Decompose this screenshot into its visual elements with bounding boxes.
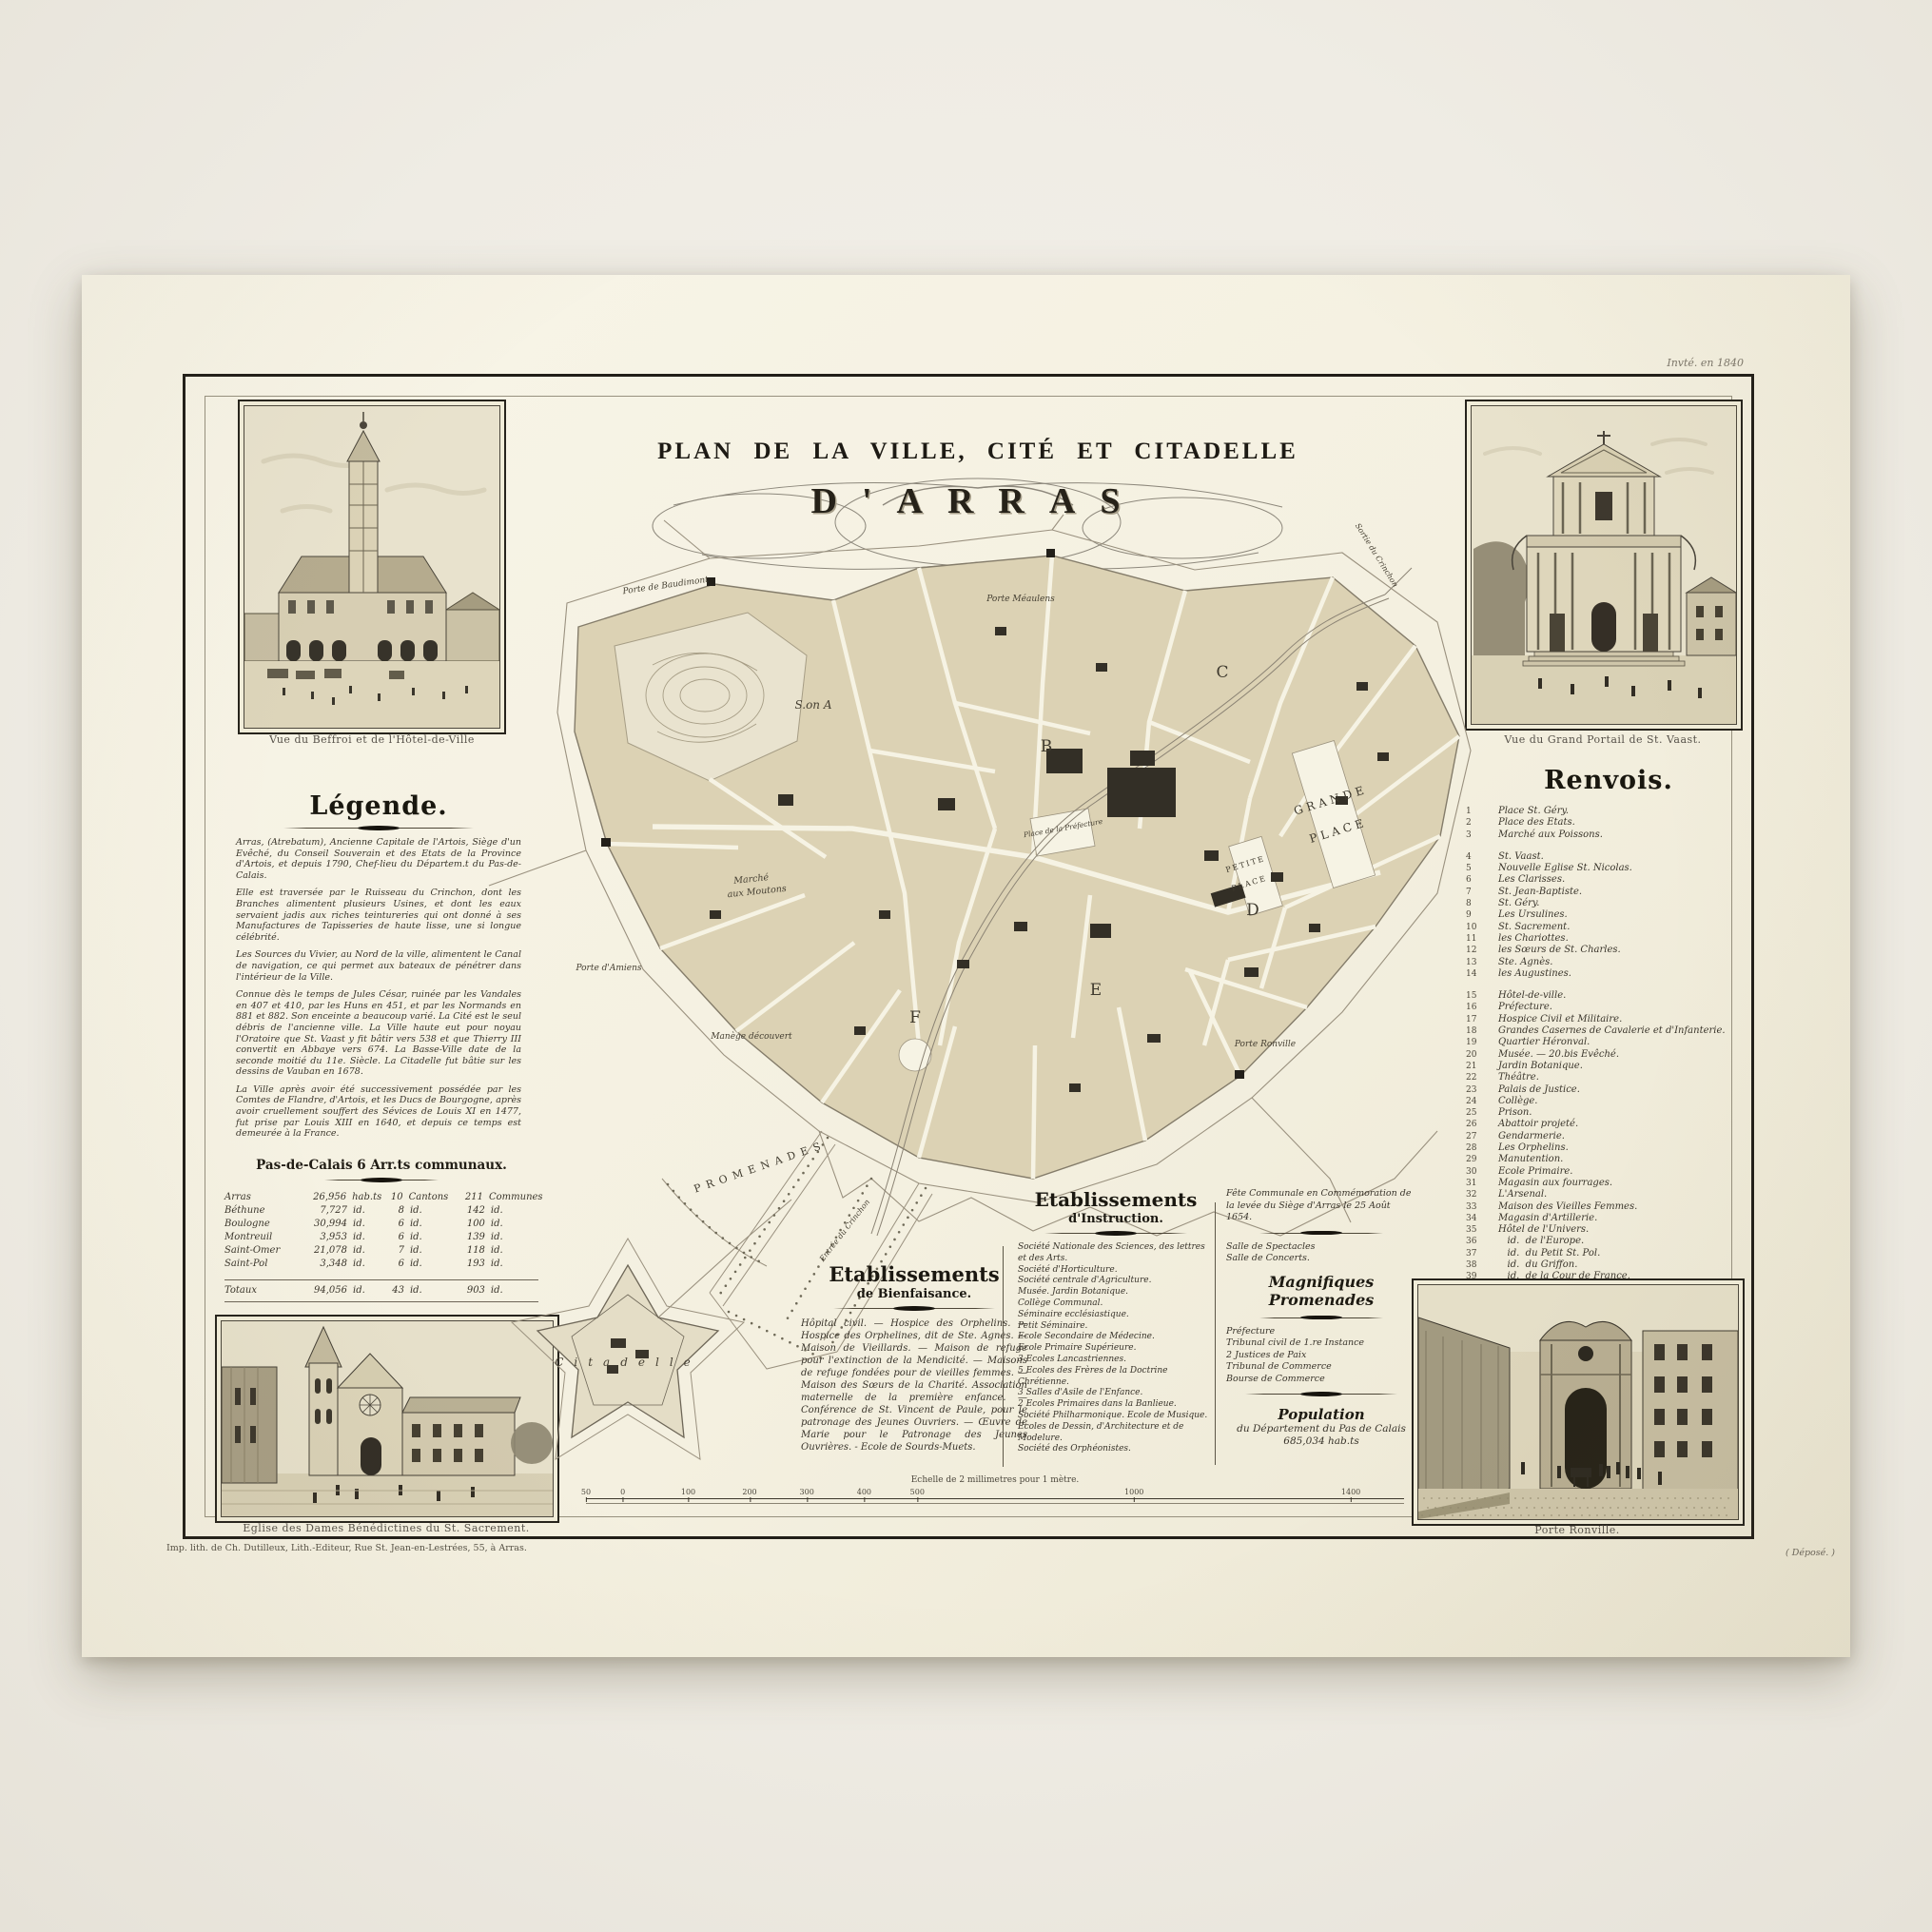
renvois-item: 29 Manutention. — [1466, 1154, 1751, 1165]
column-rule — [1215, 1202, 1216, 1465]
vignette-stvaast-panel — [1471, 405, 1737, 725]
renvois-label: id. du Griffon. — [1498, 1259, 1577, 1271]
arrondissement-name: Boulogne — [224, 1218, 302, 1231]
map-label-section-f: F — [909, 1008, 921, 1027]
scale-tick: 1000 — [1124, 1488, 1143, 1496]
renvois-label: les Sœurs de St. Charles. — [1498, 945, 1621, 956]
renvois-item: 35 Hôtel de l'Univers. — [1466, 1224, 1751, 1236]
renvois-label: Marché aux Poissons. — [1498, 829, 1603, 841]
divider-flourish — [1044, 1230, 1187, 1237]
divider-flourish — [1259, 1315, 1383, 1320]
map-label-section-a: S.on A — [794, 698, 831, 712]
scale-tick: 50 — [581, 1488, 591, 1496]
population-heading: Population — [1226, 1406, 1416, 1423]
renvois-label: Nouvelle Eglise St. Nicolas. — [1498, 863, 1632, 874]
justice-item: Bourse de Commerce — [1226, 1374, 1416, 1386]
title-block: PLAN DE LA VILLE, CITÉ ET CITADELLE D'AR… — [474, 439, 1482, 522]
renvois-label: St. Vaast. — [1498, 851, 1544, 863]
justice-list: PréfectureTribunal civil de 1.re Instanc… — [1226, 1326, 1416, 1386]
map-label-porte-ronville: Porte Ronville — [1234, 1040, 1296, 1049]
renvois-item: 16 Préfecture. — [1466, 1002, 1751, 1013]
bienfaisance-block: Etablissements de Bienfaisance. Hôpital … — [801, 1262, 1027, 1454]
renvois-label: Place des Etats. — [1498, 817, 1575, 829]
renvois-item: 22 Théâtre. — [1466, 1072, 1751, 1083]
fete-line: la levée du Siège d'Arras le 25 Août 165… — [1226, 1200, 1416, 1224]
renvois-label: Magasin aux fourrages. — [1498, 1178, 1612, 1189]
instruction-item: Collège Communal. — [1018, 1298, 1214, 1310]
bienfaisance-heading-1: Etablissements — [801, 1262, 1027, 1286]
civic-column: Fête Communale en Commémoration dela lev… — [1226, 1188, 1416, 1448]
instruction-item: Séminaire ecclésiastique. — [1018, 1310, 1214, 1321]
depose-note: ( Déposé. ) — [1786, 1548, 1835, 1558]
salle-item: Salle de Concerts. — [1226, 1253, 1416, 1265]
divider-flourish — [833, 1305, 995, 1312]
population-unit: hab.ts — [346, 1191, 383, 1204]
renvois-item: 24 Collège. — [1466, 1096, 1751, 1107]
map-label-section-e: E — [1090, 981, 1102, 1000]
renvois-item: 12 les Sœurs de St. Charles. — [1466, 945, 1751, 956]
renvois-item: 38 id. du Griffon. — [1466, 1259, 1751, 1271]
renvois-label: Place St. Géry. — [1498, 806, 1569, 817]
renvois-item: 13 Ste. Agnès. — [1466, 957, 1751, 968]
renvois-label: St. Géry. — [1498, 898, 1539, 909]
renvois-label: Grandes Casernes de Cavalerie et d'Infan… — [1498, 1025, 1726, 1037]
population-figure: 685,034 hab.ts — [1226, 1435, 1416, 1448]
renvois-item: 18 Grandes Casernes de Cavalerie et d'In… — [1466, 1025, 1751, 1037]
renvois-label: Abattoir projeté. — [1498, 1119, 1578, 1130]
divider-flourish — [1259, 1230, 1383, 1236]
cantons-value: 7 — [384, 1244, 404, 1258]
renvois-item: 39 id. de la Cour de France. — [1466, 1271, 1751, 1282]
map-label-sortie-crinchon: Sortie du Crinchon — [1354, 522, 1400, 589]
population-value: 26,956 — [301, 1191, 346, 1204]
renvois-item: 9 Les Ursulines. — [1466, 909, 1751, 921]
renvois-label: St. Jean-Baptiste. — [1498, 887, 1582, 898]
renvois-item: 7 St. Jean-Baptiste. — [1466, 887, 1751, 898]
photo-background: Invté. en 1840 PLAN DE LA VILLE, CITÉ ET… — [0, 0, 1932, 1932]
population-unit: id. — [347, 1244, 384, 1258]
renvois-item: 27 Gendarmerie. — [1466, 1131, 1751, 1142]
arrondissement-name: Montreuil — [224, 1231, 302, 1244]
instruction-item: 3 Salles d'Asile de l'Enfance. — [1018, 1388, 1214, 1399]
salle-item: Salle de Spectacles — [1226, 1241, 1416, 1254]
instruction-heading-2: d'Instruction. — [1018, 1212, 1214, 1226]
arrondissement-name: Béthune — [224, 1204, 302, 1218]
renvois-item: 25 Prison. — [1466, 1107, 1751, 1119]
scale-tick: 300 — [800, 1488, 814, 1496]
renvois-item: 2 Place des Etats. — [1466, 817, 1751, 829]
renvois-label: les Chariottes. — [1498, 933, 1569, 945]
stvaast-engraving — [1472, 406, 1736, 724]
population-value: 7,727 — [302, 1204, 347, 1218]
map-label-section-c: C — [1216, 663, 1228, 682]
population-value: 3,348 — [302, 1258, 347, 1271]
instruction-item: Ecole Primaire Supérieure. — [1018, 1343, 1214, 1355]
scale-tick: 0 — [620, 1488, 625, 1496]
scale-ruler: 50010020030040050010001400 — [586, 1498, 1404, 1505]
map-label-porte-amiens: Porte d'Amiens — [575, 964, 641, 973]
population-unit: id. — [347, 1218, 384, 1231]
cantons-value: 6 — [384, 1258, 404, 1271]
ronville-caption: Porte Ronville. — [1417, 1524, 1737, 1536]
renvois-label: Manutention. — [1498, 1154, 1563, 1165]
renvois-item: 4 St. Vaast. — [1466, 851, 1751, 863]
instruction-items: Société Nationale des Sciences, des lett… — [1018, 1242, 1214, 1455]
map-label-manege: Manège découvert — [710, 1031, 792, 1042]
renvois-label: Quartier Héronval. — [1498, 1037, 1590, 1048]
renvois-item: 26 Abattoir projeté. — [1466, 1119, 1751, 1130]
map-title-line1: PLAN DE LA VILLE, CITÉ ET CITADELLE — [474, 439, 1482, 465]
renvois-group-3: 15 Hôtel-de-ville. 16 Préfecture. 17 Hos… — [1466, 990, 1751, 1317]
divider-flourish — [1245, 1391, 1397, 1396]
promenades-heading: Magnifiques Promenades — [1226, 1273, 1416, 1309]
renvois-item: 17 Hospice Civil et Militaire. — [1466, 1014, 1751, 1025]
renvois-label: Prison. — [1498, 1107, 1532, 1119]
renvois-label: Préfecture. — [1498, 1002, 1552, 1013]
benedictines-caption: Eglise des Dames Bénédictines du St. Sac… — [221, 1522, 552, 1534]
renvois-label: id. de l'Europe. — [1498, 1236, 1584, 1247]
instruction-block: Etablissements d'Instruction. Société Na… — [1018, 1188, 1214, 1455]
scale-tick: 100 — [681, 1488, 695, 1496]
renvois-item: 20 Musée. — 20.bis Evêché. — [1466, 1049, 1751, 1061]
map-label-section-d: D — [1246, 901, 1259, 920]
fete-communale: Fête Communale en Commémoration dela lev… — [1226, 1188, 1416, 1224]
renvois-group-2: 4 St. Vaast. 5 Nouvelle Eglise St. Nicol… — [1466, 851, 1751, 980]
arrondissement-name: Saint-Pol — [224, 1258, 302, 1271]
population-unit: id. — [347, 1231, 384, 1244]
renvois-label: Ecole Primaire. — [1498, 1166, 1572, 1178]
scale-tick: 1400 — [1341, 1488, 1360, 1496]
renvois-item: 28 Les Orphelins. — [1466, 1142, 1751, 1154]
population-line: du Département du Pas de Calais — [1226, 1423, 1416, 1435]
population-block: Population du Département du Pas de Cala… — [1226, 1406, 1416, 1448]
instruction-item: Ecole Secondaire de Médecine. — [1018, 1332, 1214, 1343]
instruction-item: Musée. Jardin Botanique. — [1018, 1287, 1214, 1298]
renvois-label: Gendarmerie. — [1498, 1131, 1565, 1142]
scale-tick: 500 — [910, 1488, 925, 1496]
renvois-label: St. Sacrement. — [1498, 922, 1570, 933]
cantons-value: 8 — [384, 1204, 404, 1218]
map-poster-sheet: Invté. en 1840 PLAN DE LA VILLE, CITÉ ET… — [82, 275, 1850, 1657]
renvois-label: les Augustines. — [1498, 968, 1571, 980]
stvaast-caption: Vue du Grand Portail de St. Vaast. — [1442, 733, 1764, 746]
renvois-item: 6 Les Clarisses. — [1466, 874, 1751, 886]
corner-note: Invté. en 1840 — [1667, 357, 1744, 369]
renvois-item: 33 Maison des Vieilles Femmes. — [1466, 1201, 1751, 1213]
scale-tick: 200 — [742, 1488, 756, 1496]
map-label-porte-meaulens: Porte Méaulens — [986, 594, 1055, 604]
map-label-entree-crinchon: Entrée du Crinchon — [817, 1198, 871, 1263]
instruction-heading-1: Etablissements — [1018, 1188, 1214, 1211]
renvois-block: Renvois. 1 Place St. Géry. 2 Place des E… — [1466, 766, 1751, 1317]
justice-item: Préfecture — [1226, 1326, 1416, 1338]
renvois-item: 14 les Augustines. — [1466, 968, 1751, 980]
renvois-label: Ste. Agnès. — [1498, 957, 1552, 968]
population-unit: id. — [347, 1258, 384, 1271]
population-value: 21,078 — [302, 1244, 347, 1258]
renvois-item: 10 St. Sacrement. — [1466, 922, 1751, 933]
renvois-group-1: 1 Place St. Géry. 2 Place des Etats. 3 M… — [1466, 806, 1751, 841]
cantons-value: 10 — [383, 1191, 403, 1204]
bienfaisance-body: Hôpital civil. — Hospice des Orphelins. … — [801, 1317, 1027, 1454]
renvois-label: Hospice Civil et Militaire. — [1498, 1014, 1622, 1025]
population-value: 30,994 — [302, 1218, 347, 1231]
renvois-item: 37 id. du Petit St. Pol. — [1466, 1248, 1751, 1259]
renvois-item: 32 L'Arsenal. — [1466, 1189, 1751, 1200]
scale-tick: 400 — [857, 1488, 871, 1496]
renvois-label: Collège. — [1498, 1096, 1537, 1107]
printer-imprint: Imp. lith. de Ch. Dutilleux, Lith.-Edite… — [166, 1543, 832, 1553]
renvois-label: Maison des Vieilles Femmes. — [1498, 1201, 1637, 1213]
justice-item: 2 Justices de Paix — [1226, 1350, 1416, 1362]
arrondissement-name: Arras — [224, 1191, 301, 1204]
divider-flourish — [324, 1177, 439, 1183]
cantons-value: 6 — [384, 1231, 404, 1244]
renvois-heading: Renvois. — [1466, 766, 1751, 795]
renvois-item: 19 Quartier Héronval. — [1466, 1037, 1751, 1048]
fete-line: Fête Communale en Commémoration de — [1226, 1188, 1416, 1200]
renvois-label: id. de la Cour de France. — [1498, 1271, 1630, 1282]
renvois-item: 8 St. Géry. — [1466, 898, 1751, 909]
cantons-value: 6 — [384, 1218, 404, 1231]
column-rule — [1003, 1246, 1004, 1467]
renvois-item: 11 les Chariottes. — [1466, 933, 1751, 945]
salles-list: Salle de SpectaclesSalle de Concerts. — [1226, 1241, 1416, 1265]
renvois-item: 5 Nouvelle Eglise St. Nicolas. — [1466, 863, 1751, 874]
instruction-item: 3 Ecoles Lancastriennes. — [1018, 1355, 1214, 1366]
renvois-label: Théâtre. — [1498, 1072, 1539, 1083]
renvois-label: id. du Petit St. Pol. — [1498, 1248, 1600, 1259]
justice-item: Tribunal civil de 1.re Instance — [1226, 1337, 1416, 1350]
renvois-label: Les Clarisses. — [1498, 874, 1565, 886]
renvois-label: Palais de Justice. — [1498, 1084, 1580, 1096]
renvois-item: 31 Magasin aux fourrages. — [1466, 1178, 1751, 1189]
renvois-label: Les Orphelins. — [1498, 1142, 1569, 1154]
renvois-label: L'Arsenal. — [1498, 1189, 1547, 1200]
population-value: 3,953 — [302, 1231, 347, 1244]
instruction-item: 2 Ecoles Primaires dans la Banlieue. — [1018, 1399, 1214, 1411]
renvois-item: 34 Magasin d'Artillerie. — [1466, 1213, 1751, 1224]
instruction-item: Société centrale d'Agriculture. — [1018, 1276, 1214, 1287]
map-label-section-b: B — [1041, 737, 1053, 756]
renvois-item: 36 id. de l'Europe. — [1466, 1236, 1751, 1247]
renvois-item: 30 Ecole Primaire. — [1466, 1166, 1751, 1178]
instruction-item: Société Philharmonique. Ecole de Musique… — [1018, 1411, 1214, 1422]
scale-bar: Echelle de 2 millimetres pour 1 mètre. 5… — [586, 1475, 1404, 1505]
instruction-item: Société des Orphéonistes. — [1018, 1444, 1214, 1455]
renvois-label: Jardin Botanique. — [1498, 1061, 1583, 1072]
renvois-label: Hôtel de l'Univers. — [1498, 1224, 1589, 1236]
instruction-item: 5 Ecoles des Frères de la Doctrine Chrét… — [1018, 1366, 1214, 1389]
map-label-promenades: PROMENADES — [693, 1139, 828, 1196]
instruction-item: Petit Séminaire. — [1018, 1321, 1214, 1333]
renvois-item: 3 Marché aux Poissons. — [1466, 829, 1751, 841]
renvois-label: Magasin d'Artillerie. — [1498, 1213, 1597, 1224]
scale-caption: Echelle de 2 millimetres pour 1 mètre. — [586, 1475, 1404, 1485]
renvois-item: 23 Palais de Justice. — [1466, 1084, 1751, 1096]
population-unit: id. — [347, 1204, 384, 1218]
instruction-item: Ecoles de Dessin, d'Architecture et de M… — [1018, 1422, 1214, 1445]
instruction-item: Société Nationale des Sciences, des lett… — [1018, 1242, 1214, 1265]
renvois-label: Musée. — 20.bis Evêché. — [1498, 1049, 1619, 1061]
renvois-item: 21 Jardin Botanique. — [1466, 1061, 1751, 1072]
renvois-label: Hôtel-de-ville. — [1498, 990, 1566, 1002]
renvois-label: Les Ursulines. — [1498, 909, 1568, 921]
justice-item: Tribunal de Commerce — [1226, 1361, 1416, 1374]
renvois-item: 15 Hôtel-de-ville. — [1466, 990, 1751, 1002]
renvois-item: 1 Place St. Géry. — [1466, 806, 1751, 817]
instruction-item: Société d'Horticulture. — [1018, 1265, 1214, 1277]
map-label-citadelle: Citadelle — [555, 1356, 701, 1369]
arrondissement-name: Saint-Omer — [224, 1244, 302, 1258]
bienfaisance-heading-2: de Bienfaisance. — [801, 1287, 1027, 1301]
